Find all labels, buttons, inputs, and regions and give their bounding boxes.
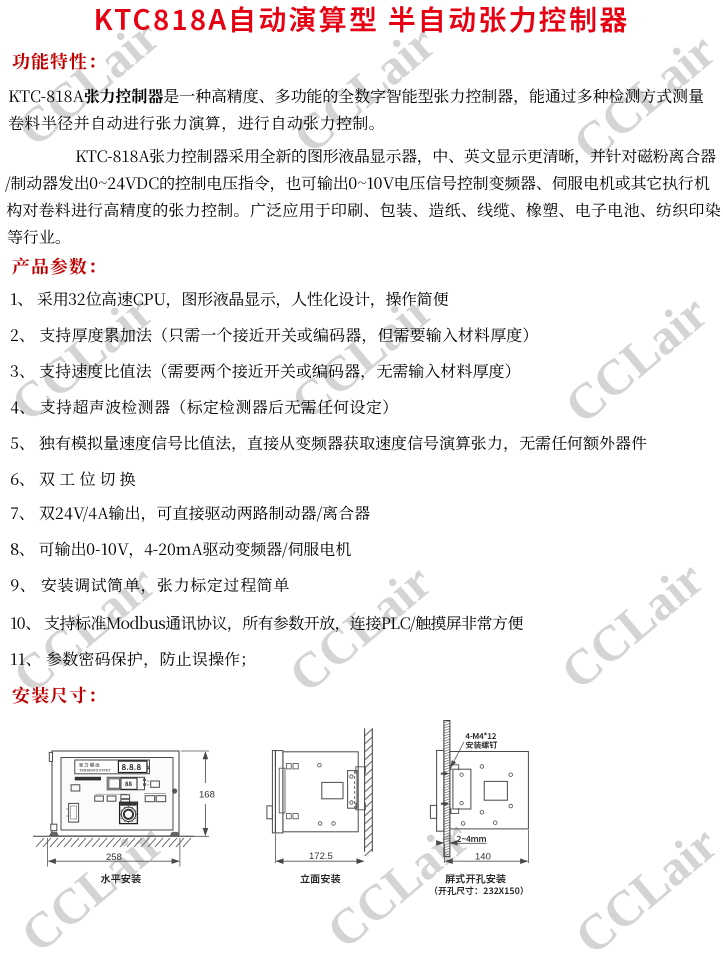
svg-text:258: 258 [106, 852, 122, 863]
svg-text:140: 140 [475, 851, 491, 862]
svg-text:TENSION OUTPUT: TENSION OUTPUT [79, 769, 111, 774]
svg-text:▲: ▲ [147, 778, 150, 782]
svg-text:88: 88 [125, 779, 132, 788]
svg-text:168: 168 [199, 790, 215, 801]
svg-text:水平安装: 水平安装 [101, 871, 143, 886]
svg-text:安装螺钉: 安装螺钉 [465, 740, 497, 751]
svg-text:8.8.8: 8.8.8 [122, 762, 142, 773]
svg-text:172.5: 172.5 [309, 851, 333, 862]
svg-text:立面安装: 立面安装 [300, 871, 342, 886]
svg-text:▼: ▼ [147, 783, 150, 787]
svg-text:（开孔尺寸：232X150）: （开孔尺寸：232X150） [429, 884, 529, 897]
